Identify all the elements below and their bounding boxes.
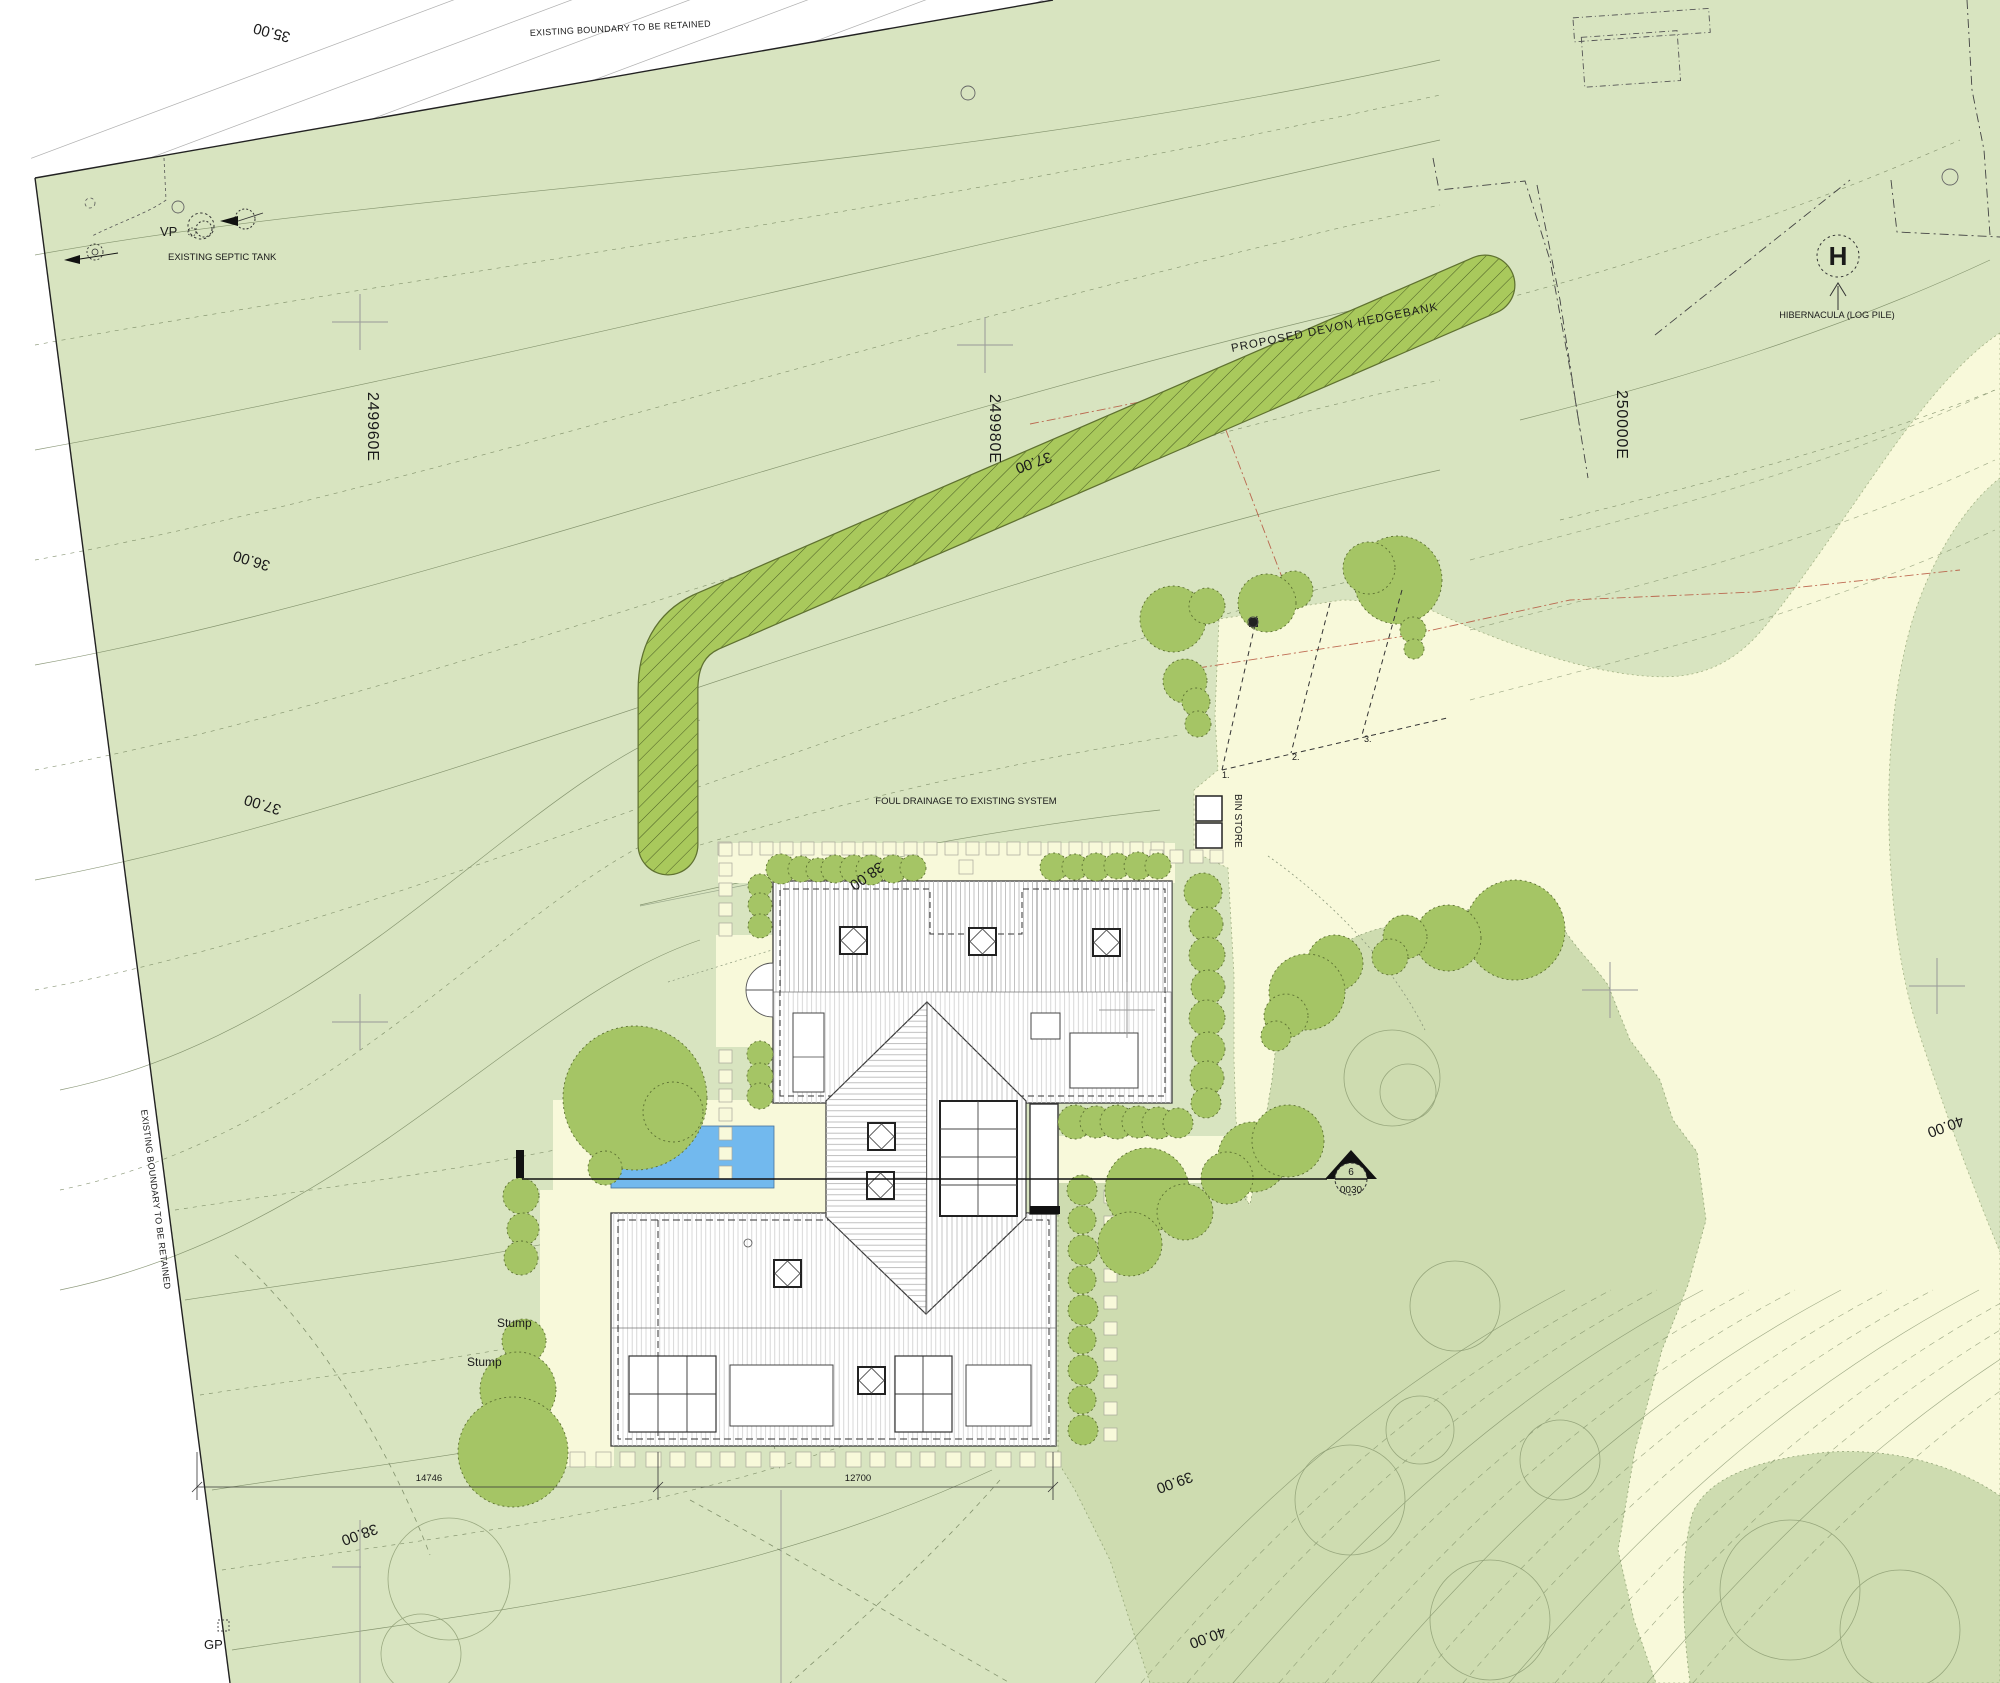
svg-text:0030: 0030: [1340, 1185, 1363, 1196]
svg-text:249980E: 249980E: [986, 394, 1003, 464]
svg-text:GP: GP: [204, 1637, 223, 1652]
svg-text:14746: 14746: [416, 1473, 442, 1484]
svg-text:2.: 2.: [1292, 752, 1300, 762]
svg-text:249960E: 249960E: [364, 392, 381, 462]
svg-text:3.: 3.: [1364, 734, 1372, 744]
svg-text:12700: 12700: [845, 1473, 871, 1484]
svg-text:FOUL DRAINAGE TO EXISTING SYST: FOUL DRAINAGE TO EXISTING SYSTEM: [875, 796, 1057, 807]
svg-text:6: 6: [1348, 1167, 1354, 1178]
svg-text:VP: VP: [160, 224, 177, 239]
svg-text:250000E: 250000E: [1613, 390, 1630, 460]
svg-text:Stump: Stump: [467, 1355, 502, 1369]
svg-text:H: H: [1829, 241, 1848, 271]
svg-text:HIBERNACULA (LOG PILE): HIBERNACULA (LOG PILE): [1779, 310, 1894, 320]
svg-text:BIN STORE: BIN STORE: [1232, 794, 1243, 848]
svg-text:EXISTING SEPTIC TANK: EXISTING SEPTIC TANK: [168, 252, 277, 263]
svg-text:1.: 1.: [1222, 770, 1230, 780]
svg-text:Stump: Stump: [497, 1316, 532, 1330]
